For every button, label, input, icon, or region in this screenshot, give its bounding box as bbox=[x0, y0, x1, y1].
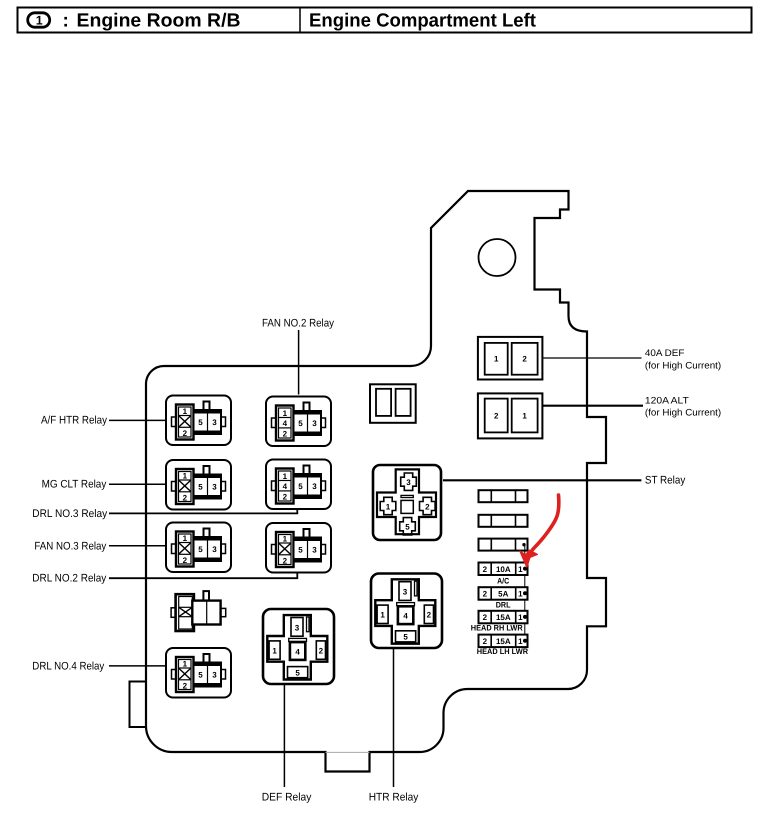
svg-text:2: 2 bbox=[494, 412, 499, 421]
svg-text:2: 2 bbox=[319, 647, 324, 656]
svg-text:2: 2 bbox=[483, 565, 488, 574]
svg-text:DEF Relay: DEF Relay bbox=[262, 792, 312, 804]
svg-text:5: 5 bbox=[405, 523, 410, 532]
svg-text:DRL NO.2 Relay: DRL NO.2 Relay bbox=[32, 573, 106, 585]
svg-text:2: 2 bbox=[483, 637, 488, 646]
svg-text:ST Relay: ST Relay bbox=[645, 475, 686, 487]
svg-text:FAN NO.2 Relay: FAN NO.2 Relay bbox=[262, 318, 334, 330]
svg-text:5A: 5A bbox=[498, 590, 508, 599]
svg-text:1: 1 bbox=[272, 647, 277, 656]
svg-text:3: 3 bbox=[406, 478, 411, 487]
svg-text:40A DEF: 40A DEF bbox=[645, 348, 685, 359]
svg-text:3: 3 bbox=[295, 624, 300, 633]
svg-text:1: 1 bbox=[36, 14, 43, 28]
svg-text:3: 3 bbox=[403, 588, 408, 597]
svg-text:1: 1 bbox=[518, 637, 523, 646]
svg-text:DRL: DRL bbox=[496, 600, 511, 609]
svg-text:1: 1 bbox=[518, 565, 523, 574]
svg-text:DRL NO.4 Relay: DRL NO.4 Relay bbox=[32, 660, 104, 672]
svg-text:15A: 15A bbox=[496, 613, 511, 622]
svg-text:2: 2 bbox=[427, 611, 432, 620]
svg-text:10A: 10A bbox=[496, 565, 511, 574]
svg-text:HEAD RH LWR: HEAD RH LWR bbox=[471, 623, 523, 632]
svg-text:1: 1 bbox=[518, 590, 523, 599]
svg-text:5: 5 bbox=[403, 633, 408, 642]
svg-text:DRL NO.3 Relay: DRL NO.3 Relay bbox=[32, 508, 107, 520]
svg-text:A/F HTR Relay: A/F HTR Relay bbox=[41, 415, 107, 427]
svg-text:HEAD LH LWR: HEAD LH LWR bbox=[477, 647, 528, 656]
svg-text:4: 4 bbox=[295, 648, 300, 657]
svg-text:(for High Current): (for High Current) bbox=[645, 408, 721, 419]
svg-text:1: 1 bbox=[494, 355, 499, 364]
svg-text:Engine Room R/B: Engine Room R/B bbox=[77, 10, 241, 31]
svg-text:2: 2 bbox=[425, 502, 430, 511]
svg-text:MG CLT Relay: MG CLT Relay bbox=[42, 479, 107, 491]
svg-text:5: 5 bbox=[295, 669, 300, 678]
svg-text:(for High Current): (for High Current) bbox=[645, 360, 721, 371]
svg-text:4: 4 bbox=[403, 612, 408, 621]
svg-text:A/C: A/C bbox=[497, 576, 509, 585]
svg-text:2: 2 bbox=[483, 590, 488, 599]
svg-text:2: 2 bbox=[483, 613, 488, 622]
svg-text:1: 1 bbox=[386, 502, 391, 511]
svg-text:HTR Relay: HTR Relay bbox=[369, 792, 419, 804]
svg-text:FAN NO.3 Relay: FAN NO.3 Relay bbox=[34, 540, 106, 552]
svg-text:Engine Compartment Left: Engine Compartment Left bbox=[309, 10, 537, 31]
svg-text:1: 1 bbox=[518, 613, 523, 622]
svg-text:15A: 15A bbox=[496, 637, 511, 646]
svg-text:1: 1 bbox=[380, 611, 385, 620]
svg-text::: : bbox=[63, 10, 69, 31]
svg-text:120A ALT: 120A ALT bbox=[645, 395, 689, 406]
svg-text:1: 1 bbox=[522, 412, 527, 421]
svg-text:2: 2 bbox=[522, 355, 527, 364]
